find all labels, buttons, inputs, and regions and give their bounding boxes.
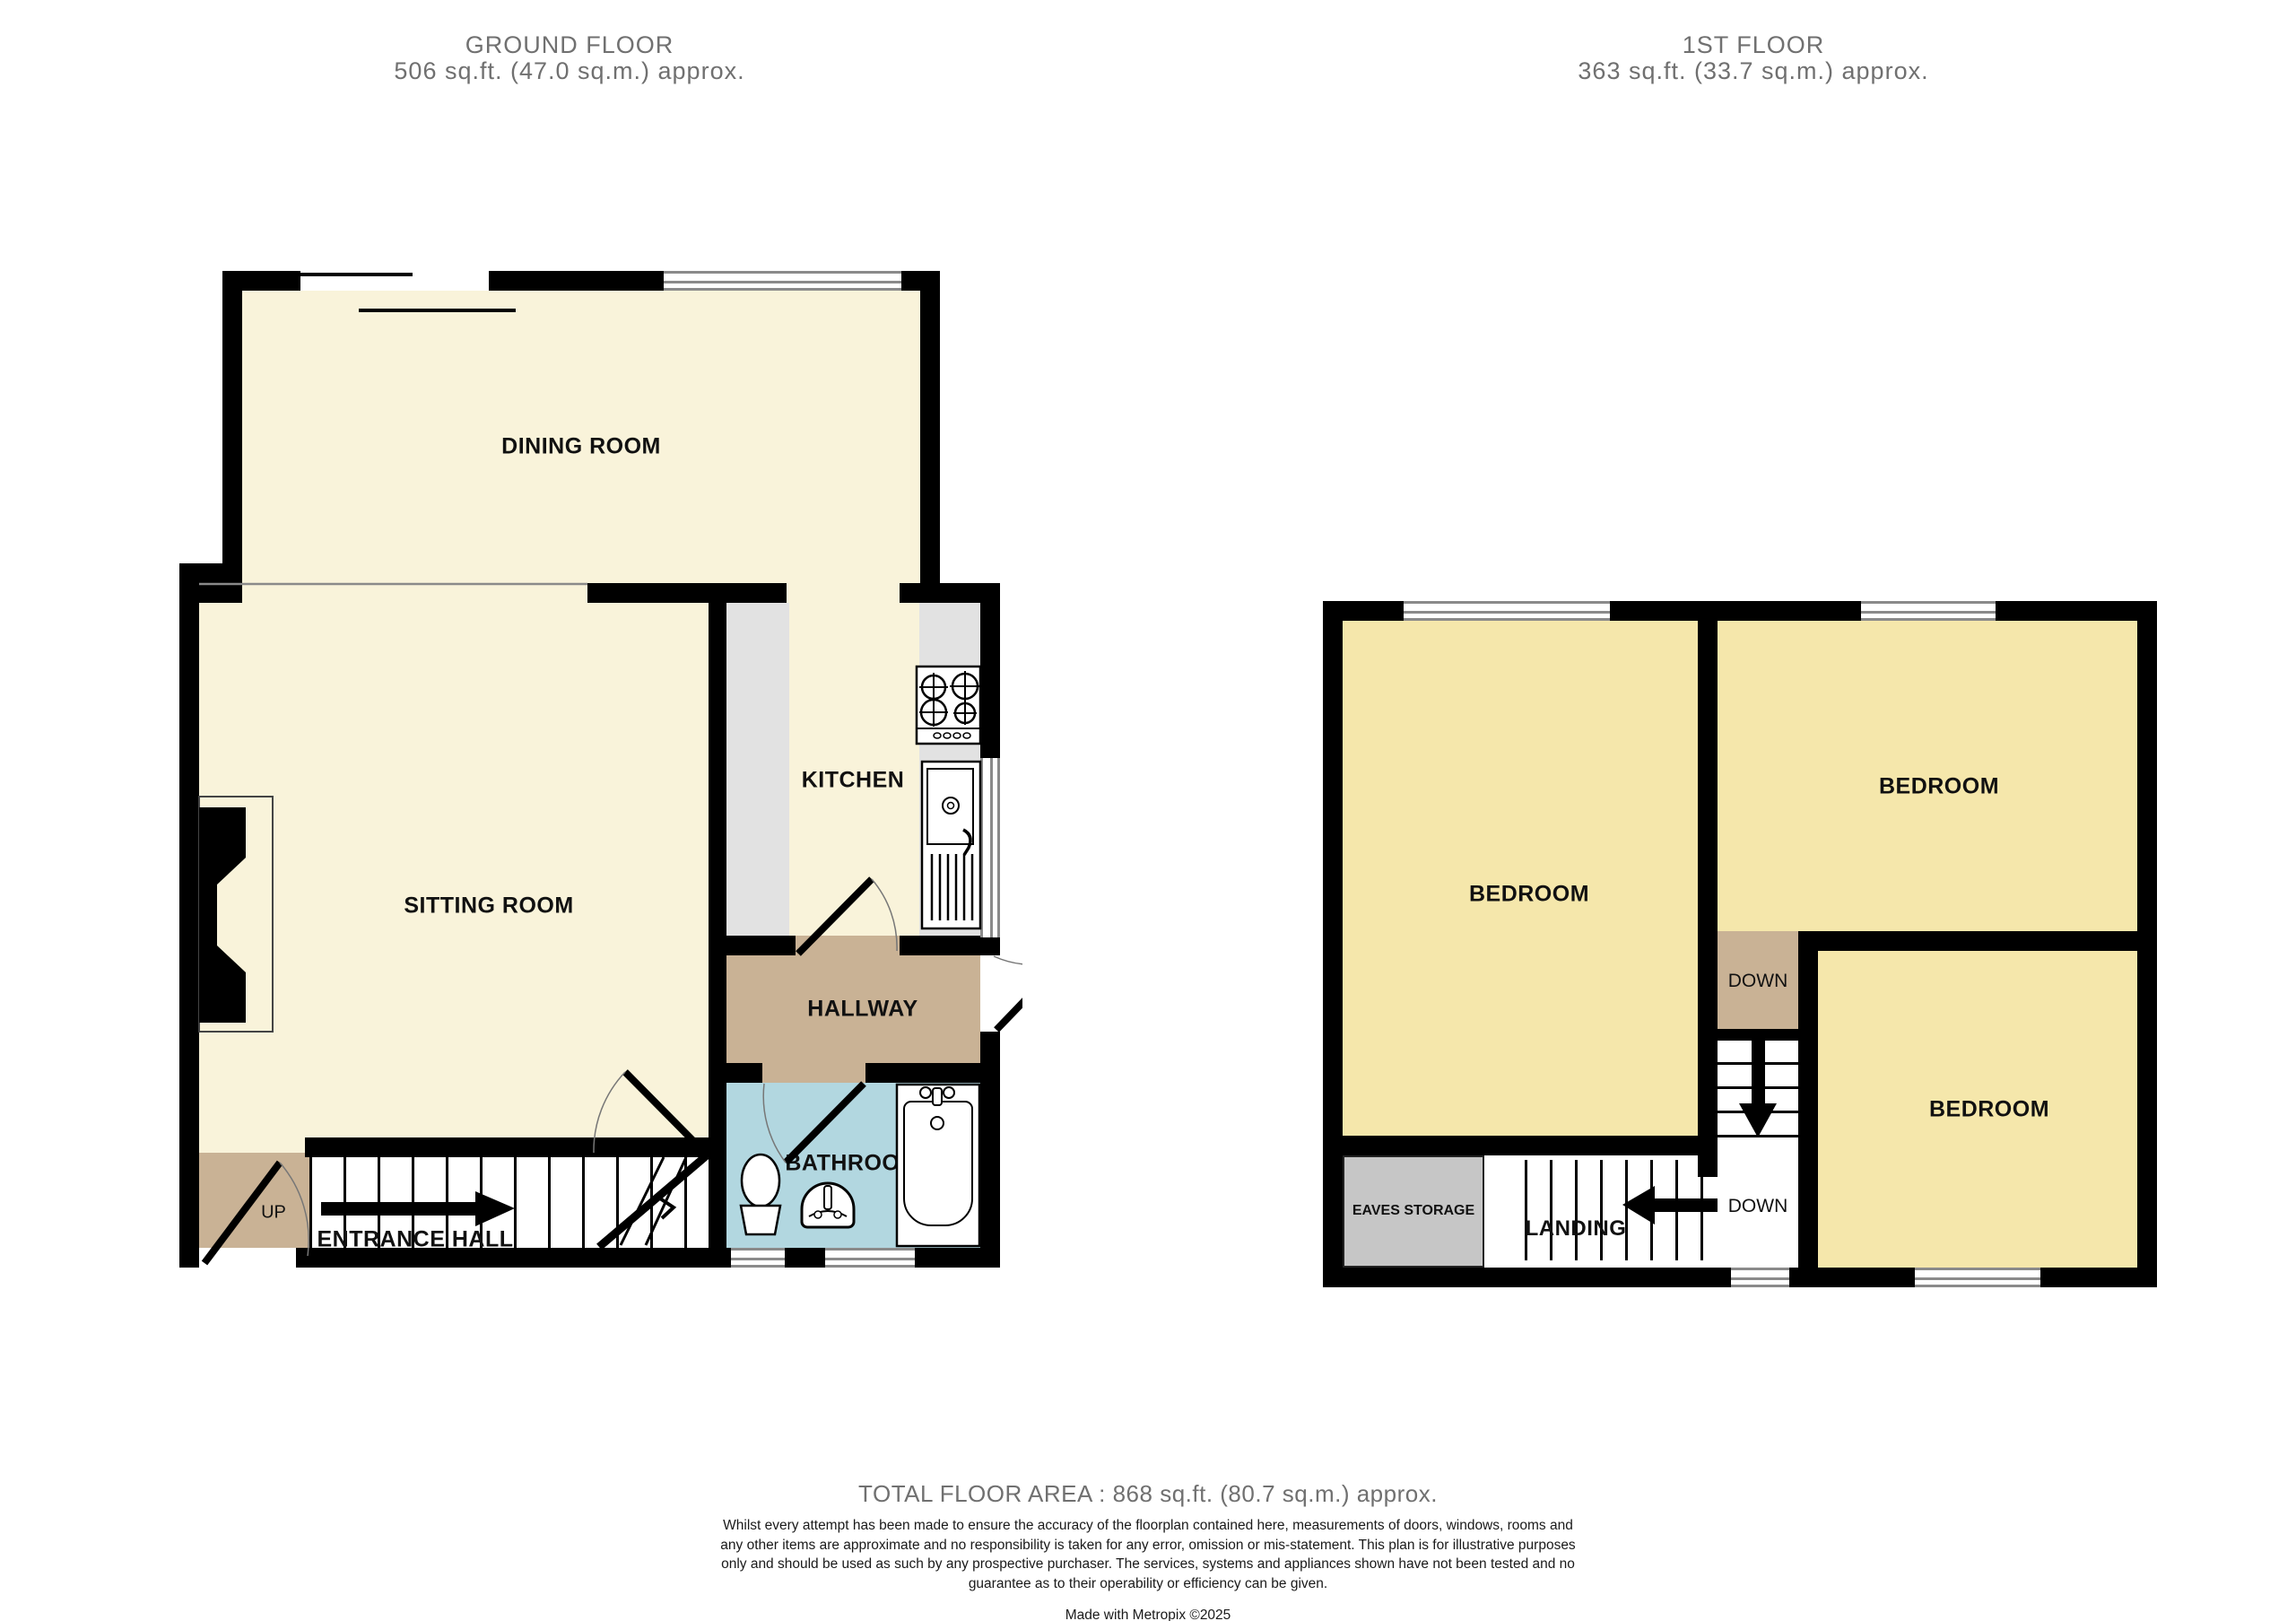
window	[980, 758, 1000, 937]
bedroom-bottom-right-label: BEDROOM	[1929, 1097, 2049, 1123]
disclaimer-text: Whilst every attempt has been made to en…	[717, 1516, 1578, 1593]
back-door-opening	[980, 955, 1000, 1032]
hallway-label: HALLWAY	[807, 997, 918, 1023]
wall	[1798, 931, 2137, 951]
wall	[709, 603, 726, 1248]
ground-floor-plan: DINING ROOM SITTING ROOM KITCHEN HALLWAY…	[179, 269, 1022, 1292]
wall	[1323, 601, 1343, 1287]
kitchen-opening	[787, 583, 900, 603]
wall	[1798, 951, 1818, 1268]
kitchen-label: KITCHEN	[802, 768, 905, 794]
first-floor-title: 1ST FLOOR	[1683, 31, 1825, 59]
eaves-storage-label: EAVES STORAGE	[1352, 1203, 1474, 1219]
window	[664, 271, 901, 291]
sliding-door-icon	[359, 309, 516, 312]
total-floor-area: TOTAL FLOOR AREA : 868 sq.ft. (80.7 sq.m…	[858, 1480, 1438, 1508]
floorplan-page: GROUND FLOOR 506 sq.ft. (47.0 sq.m.) app…	[0, 0, 2296, 1621]
ground-floor-title: GROUND FLOOR	[465, 31, 674, 59]
window	[1861, 601, 1996, 621]
window	[1915, 1268, 2040, 1287]
bedroom-left-label: BEDROOM	[1469, 882, 1589, 908]
first-floor-area: 363 sq.ft. (33.7 sq.m.) approx.	[1578, 57, 1928, 85]
wall	[920, 271, 940, 603]
kitchen-counter-right	[919, 603, 980, 936]
kitchen-counter-left	[726, 603, 789, 936]
wall	[179, 563, 199, 1268]
bedroom-left	[1343, 621, 1698, 1136]
front-door-opening	[199, 1248, 296, 1268]
stairs-down-lower	[1525, 1160, 1718, 1260]
window	[1404, 601, 1610, 621]
wall	[1323, 1136, 1718, 1155]
wall	[1698, 621, 1718, 1177]
window	[1731, 1268, 1789, 1287]
bedroom-top-right-label: BEDROOM	[1879, 774, 1999, 800]
kitchen-door-opening	[796, 936, 900, 955]
first-floor-plan: BEDROOM BEDROOM BEDROOM DOWN DOWN LANDIN…	[1323, 601, 2157, 1287]
wall	[1718, 1029, 1798, 1038]
window	[825, 1248, 915, 1268]
down-label-top: DOWN	[1728, 971, 1788, 992]
wall	[305, 1137, 709, 1157]
ground-floor-area: 506 sq.ft. (47.0 sq.m.) approx.	[394, 57, 744, 85]
wall	[2137, 601, 2157, 1287]
bathroom-door-opening	[762, 1063, 865, 1083]
metropix-credit: Made with Metropix ©2025	[1065, 1608, 1231, 1621]
dining-room-label: DINING ROOM	[501, 434, 661, 460]
window	[731, 1248, 785, 1268]
landing-label: LANDING	[1526, 1216, 1627, 1242]
entrance-hall-label: ENTRANCE HALL	[317, 1227, 514, 1253]
sliding-door-icon	[300, 273, 413, 276]
wall	[222, 271, 242, 603]
stairs-down-upper	[1718, 1038, 1798, 1157]
bathroom-label: BATHROOM	[785, 1151, 918, 1177]
down-label-bottom: DOWN	[1728, 1196, 1788, 1217]
sitting-room-label: SITTING ROOM	[404, 893, 573, 919]
stairs-up-label: UP	[261, 1203, 286, 1224]
